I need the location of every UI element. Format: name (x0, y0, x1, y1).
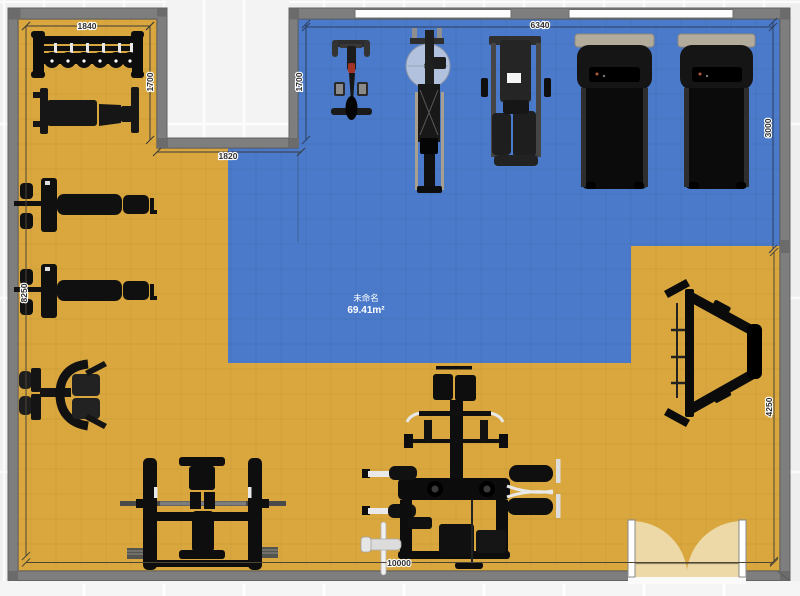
svg-text:4250: 4250 (764, 397, 774, 416)
svg-text:8250: 8250 (19, 283, 29, 302)
svg-text:10000: 10000 (387, 558, 411, 568)
svg-text:1700: 1700 (145, 72, 155, 91)
svg-text:3000: 3000 (763, 118, 773, 137)
svg-text:69.41m²: 69.41m² (347, 305, 385, 316)
svg-text:未命名: 未命名 (353, 293, 379, 303)
svg-text:1700: 1700 (294, 72, 304, 91)
svg-text:1820: 1820 (219, 151, 238, 161)
svg-text:1840: 1840 (78, 21, 97, 31)
svg-text:6340: 6340 (531, 20, 550, 30)
